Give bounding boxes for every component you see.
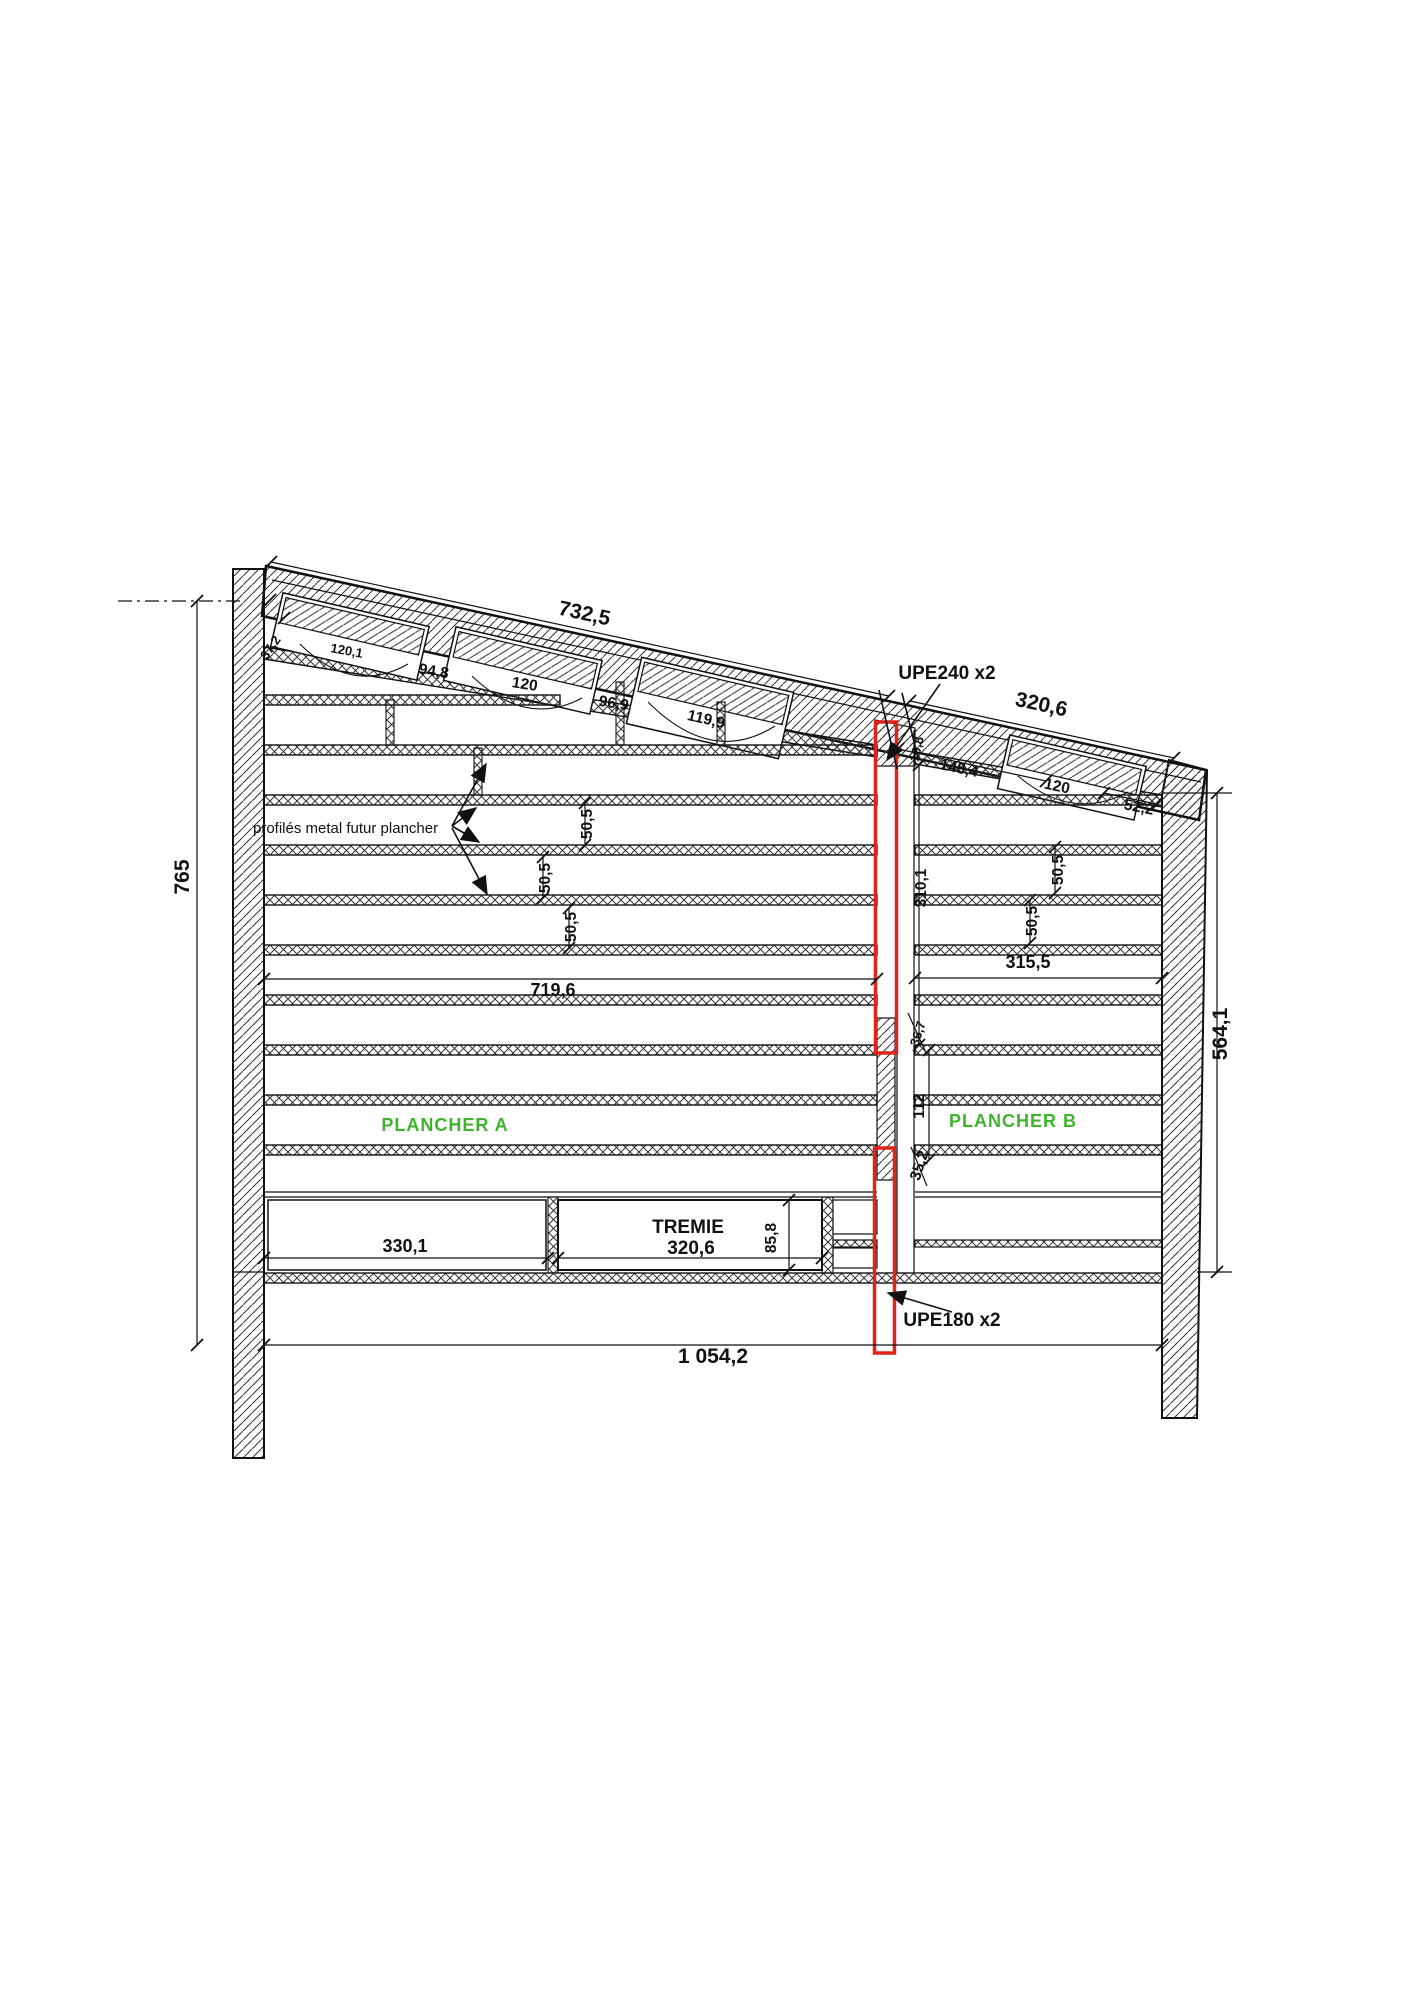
section-drawing: 732,5 37,2 120,1 94,8 120 96,9 119,9 UPE… — [0, 0, 1414, 2000]
dim-spacing-label-2: 50,5 — [537, 863, 554, 894]
dim-opening-left-label: 330,1 — [382, 1236, 427, 1256]
dim-span-left-label: 719,6 — [530, 980, 575, 1000]
plancher-a-label: PLANCHER A — [381, 1115, 508, 1135]
tremie-width-label: 320,6 — [667, 1238, 715, 1259]
dim-left-wall-height-label: 765 — [171, 859, 194, 894]
dim-spacing-label-1: 50,5 — [579, 809, 596, 840]
dim-span-right-label: 315,5 — [1005, 952, 1050, 972]
central-column-lower — [877, 1018, 895, 1180]
upe180-label: UPE180 x2 — [903, 1310, 1000, 1331]
tremie-height-label: 85,8 — [763, 1223, 780, 1254]
bottom-beam — [264, 1273, 1162, 1283]
dim-spacing-label-5: 50,5 — [1024, 906, 1041, 937]
dim-spacing-label-3: 50,5 — [563, 912, 580, 943]
dim-col2-label: 112 — [911, 1093, 928, 1118]
small-bay-2 — [833, 1248, 877, 1268]
tremie-title-label: TREMIE — [652, 1217, 724, 1238]
dim-spacing-label-4: 50,5 — [1050, 855, 1067, 886]
upe240-label: UPE240 x2 — [898, 663, 995, 684]
dim-column-height-label: 310,1 — [913, 868, 930, 907]
profiles-note: profilés metal futur plancher — [253, 820, 438, 837]
small-bay-1 — [833, 1200, 877, 1234]
plancher-b-label: PLANCHER B — [949, 1111, 1077, 1131]
dim-right-wall-height-label: 564,1 — [1209, 1007, 1232, 1060]
dim-total-label: 1 054,2 — [678, 1345, 748, 1368]
left-wall — [233, 569, 264, 1458]
